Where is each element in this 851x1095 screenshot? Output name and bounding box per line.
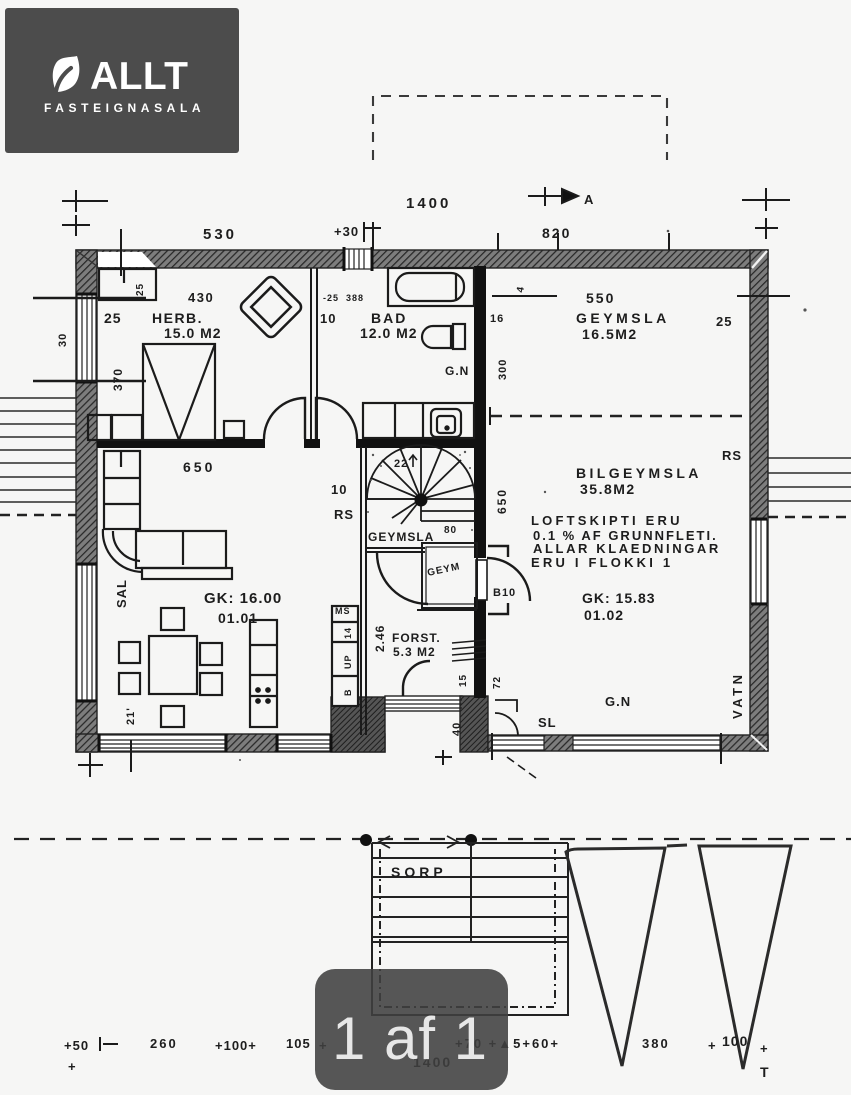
svg-text:820: 820 (542, 225, 571, 241)
svg-text:15.0 M2: 15.0 M2 (164, 325, 222, 341)
svg-text:GK: 15.83: GK: 15.83 (582, 590, 656, 606)
svg-text:MS: MS (335, 606, 351, 616)
svg-text:550: 550 (586, 290, 615, 306)
svg-text:RS: RS (334, 507, 354, 522)
svg-text:01.01: 01.01 (218, 610, 258, 626)
svg-text:12.0 M2: 12.0 M2 (360, 325, 418, 341)
svg-text:+: + (760, 1041, 769, 1056)
svg-text:10: 10 (320, 311, 336, 326)
svg-text:380: 380 (642, 1036, 670, 1051)
svg-text:HERB.: HERB. (152, 310, 203, 326)
svg-text:72: 72 (492, 676, 503, 689)
svg-text:530: 530 (203, 226, 237, 243)
svg-text:80: 80 (444, 525, 457, 536)
svg-text:GEYMSLA: GEYMSLA (576, 310, 670, 326)
svg-text:ALLAR KLAEDNINGAR: ALLAR KLAEDNINGAR (533, 541, 721, 556)
svg-text:A: A (584, 192, 594, 207)
svg-text:260: 260 (150, 1036, 178, 1051)
svg-text:14: 14 (343, 627, 353, 639)
svg-text:LOFTSKIPTI ERU: LOFTSKIPTI ERU (531, 513, 683, 528)
svg-text:+100+: +100+ (215, 1038, 257, 1053)
svg-text:15: 15 (458, 674, 469, 687)
svg-text:30: 30 (57, 333, 69, 347)
svg-text:25: 25 (104, 310, 122, 326)
svg-text:UP: UP (343, 654, 353, 669)
svg-text:2.46: 2.46 (373, 625, 387, 652)
svg-text:370: 370 (111, 368, 125, 391)
svg-text:SAL: SAL (114, 579, 129, 608)
svg-text:105: 105 (286, 1036, 311, 1051)
svg-text:100: 100 (722, 1033, 748, 1049)
svg-text:21': 21' (125, 707, 137, 725)
svg-text:430: 430 (188, 290, 214, 305)
svg-text:BILGEYMSLA: BILGEYMSLA (576, 465, 702, 481)
svg-text:300: 300 (497, 359, 509, 380)
svg-text:25: 25 (716, 314, 732, 329)
svg-text:ALLT: ALLT (90, 55, 191, 98)
svg-text:650: 650 (183, 459, 215, 475)
svg-text:B: B (343, 689, 353, 697)
svg-text:1400: 1400 (406, 195, 451, 212)
svg-text:35.8M2: 35.8M2 (580, 481, 636, 497)
svg-text:VATN: VATN (730, 672, 745, 719)
svg-text:-25: -25 (323, 293, 339, 303)
svg-text:FORST.: FORST. (392, 631, 441, 645)
svg-text:+: + (708, 1038, 717, 1053)
svg-text:5.3 M2: 5.3 M2 (393, 645, 436, 659)
svg-text:ERU I FLOKKI 1: ERU I FLOKKI 1 (531, 555, 673, 570)
svg-text:G.N: G.N (445, 364, 469, 378)
svg-text:16.5M2: 16.5M2 (582, 326, 638, 342)
svg-text:SL: SL (538, 715, 557, 730)
svg-text:+30: +30 (334, 224, 359, 239)
svg-text:+50: +50 (64, 1038, 89, 1053)
svg-text:G.N: G.N (605, 694, 631, 709)
svg-text:RS: RS (722, 448, 742, 463)
svg-text:FASTEIGNASALA: FASTEIGNASALA (44, 101, 205, 115)
svg-text:SORP: SORP (391, 864, 447, 880)
svg-text:388: 388 (346, 293, 364, 303)
svg-text:25: 25 (135, 283, 146, 296)
svg-text:GEYMSLA: GEYMSLA (368, 530, 434, 544)
svg-text:01.02: 01.02 (584, 607, 624, 623)
svg-text:16: 16 (490, 313, 504, 325)
svg-text:GK: 16.00: GK: 16.00 (204, 590, 282, 607)
svg-text:BAD: BAD (371, 310, 407, 326)
svg-text:B10: B10 (493, 587, 516, 599)
svg-text:10: 10 (331, 482, 347, 497)
svg-text:T: T (760, 1064, 770, 1080)
svg-text:22: 22 (394, 458, 408, 470)
svg-text:650: 650 (495, 488, 509, 514)
svg-text:40: 40 (451, 722, 463, 736)
svg-text:1 af 1: 1 af 1 (332, 1005, 488, 1072)
svg-text:+: + (68, 1059, 77, 1074)
